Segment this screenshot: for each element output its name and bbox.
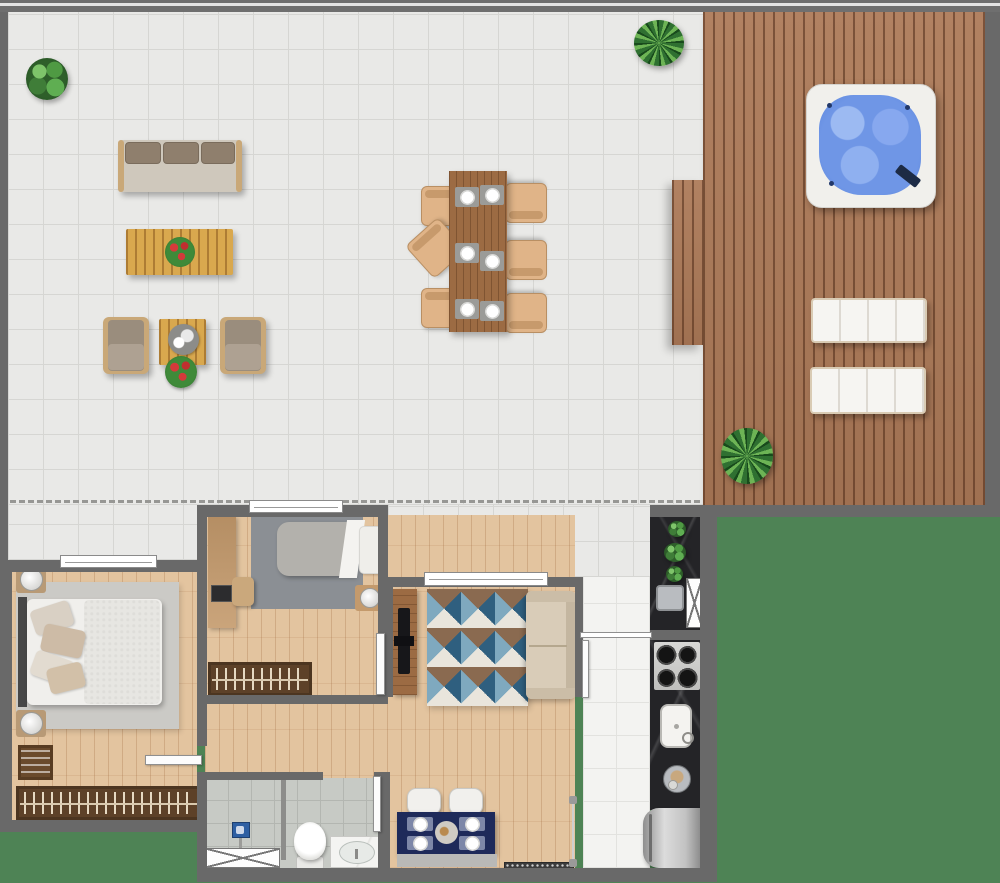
- duvet: [84, 600, 160, 704]
- jacuzzi-jet: [827, 103, 832, 108]
- dining-chair: [505, 293, 547, 333]
- living-sofa: [526, 591, 576, 699]
- toilet-bowl: [294, 822, 326, 860]
- place-setting: [459, 836, 485, 850]
- dining-chair: [505, 240, 547, 280]
- wall-top: [0, 0, 1000, 12]
- deck-floor-notch: [672, 180, 703, 345]
- kitchen-sink-white: [660, 704, 692, 748]
- partition-post: [569, 859, 577, 867]
- place-setting: [480, 251, 504, 271]
- jacuzzi-jet: [829, 181, 834, 186]
- jacuzzi: [806, 84, 936, 208]
- vanity: [330, 836, 382, 868]
- palm-plant-icon: [634, 20, 684, 66]
- sun-lounger: [811, 298, 927, 343]
- wall-corridor-left: [197, 700, 207, 746]
- wall-living-left: [385, 583, 393, 697]
- navy-dining-table: [397, 812, 495, 854]
- counter-plant-icon: [668, 521, 686, 537]
- wall-bedroom2-bottom: [197, 695, 388, 704]
- outdoor-sofa: [118, 140, 242, 192]
- nightstand-lamp: [20, 712, 43, 735]
- master-bedroom-window: [60, 555, 157, 568]
- wall-master-bottom: [0, 820, 207, 832]
- kitchen-hall-floor: [583, 577, 650, 868]
- wall-master-left: [0, 572, 12, 820]
- wall-deck-bottom: [650, 505, 1000, 517]
- place-setting: [455, 299, 479, 319]
- counter-plant-icon: [666, 566, 683, 582]
- fridge-handle: [649, 814, 652, 862]
- nook-chair: [449, 788, 483, 815]
- living-room-window: [424, 572, 548, 586]
- dresser: [18, 745, 53, 780]
- faucet: [682, 732, 694, 744]
- desk: [208, 516, 236, 628]
- partition-post: [569, 796, 577, 804]
- floor-plan: [0, 0, 1000, 883]
- wall-left-terrace: [0, 12, 8, 560]
- headboard: [18, 597, 27, 707]
- toilet: [294, 822, 326, 870]
- sofa-arm-left: [118, 140, 124, 192]
- sofa-arm-right: [236, 140, 242, 192]
- master-bedroom-door: [145, 755, 202, 765]
- nook-chair: [407, 788, 441, 815]
- sofa-cushion: [163, 142, 199, 164]
- sofa-armrest: [526, 591, 576, 602]
- wall-right-deck: [985, 12, 1000, 517]
- partition-glass: [572, 796, 574, 867]
- tv: [398, 608, 410, 674]
- palm-plant-icon: [721, 428, 773, 484]
- sofa-armrest: [526, 688, 576, 699]
- shower-head: [232, 822, 250, 838]
- hall-door-track: [580, 632, 652, 638]
- basin-small-cup: [668, 780, 678, 790]
- master-wardrobe: [16, 786, 202, 820]
- steel-sink: [656, 585, 684, 611]
- hall-door-leaf: [582, 640, 589, 698]
- armchair-left: [103, 317, 149, 374]
- terrace-floor-left-strip: [8, 505, 197, 560]
- place-setting: [407, 836, 433, 850]
- glass-partition: [567, 796, 579, 867]
- terrace-floor: [8, 12, 705, 505]
- double-bed: [18, 597, 164, 707]
- geometric-rug: [427, 589, 528, 706]
- desk-chair: [232, 577, 254, 606]
- place-setting: [407, 817, 433, 831]
- wall-bathroom-left: [197, 772, 207, 872]
- tv-stand: [394, 636, 414, 646]
- table-plant-icon: [165, 237, 195, 267]
- sun-lounger: [810, 367, 926, 414]
- cooktop: [654, 642, 700, 690]
- potted-plant-icon: [26, 58, 68, 100]
- terrace-dining-table: [449, 171, 507, 332]
- shower-divider: [281, 780, 286, 860]
- terrace-boundary-dashed-line: [10, 500, 700, 503]
- bench: [397, 854, 497, 867]
- refrigerator: [643, 808, 704, 868]
- dining-chair: [505, 183, 547, 223]
- second-bedroom-window: [249, 500, 343, 513]
- armchair-right: [220, 317, 266, 374]
- single-bed: [277, 520, 383, 578]
- place-setting: [455, 187, 479, 207]
- second-bedroom-door: [376, 633, 385, 695]
- tea-tray: [168, 324, 199, 355]
- kitchen-passage-wall: [650, 630, 702, 640]
- wall-bottom-main: [197, 868, 717, 882]
- wall-bedroom2-left: [197, 517, 207, 697]
- bathroom-door: [373, 776, 381, 832]
- sofa-cushion-line: [529, 645, 567, 647]
- flower-planter-icon: [165, 356, 197, 388]
- jacuzzi-jet: [905, 105, 910, 110]
- vanity-faucet: [355, 849, 358, 859]
- place-setting: [459, 817, 485, 831]
- sofa-cushion: [125, 142, 161, 164]
- wall-bathroom-top-left: [197, 772, 323, 780]
- nightstand-lamp: [360, 588, 380, 608]
- shower-head-face: [236, 826, 244, 834]
- counter-plant-icon: [664, 543, 686, 562]
- round-basin: [663, 765, 691, 793]
- centerpiece-bowl: [435, 821, 458, 844]
- second-wardrobe: [208, 662, 312, 696]
- place-setting: [480, 185, 504, 205]
- shower-sill: [206, 848, 280, 868]
- laptop: [211, 585, 232, 602]
- place-setting: [480, 301, 504, 321]
- wall-kitchen-right: [700, 517, 717, 882]
- sink-drain: [674, 724, 679, 729]
- sofa-cushion: [201, 142, 235, 164]
- place-setting: [455, 243, 479, 263]
